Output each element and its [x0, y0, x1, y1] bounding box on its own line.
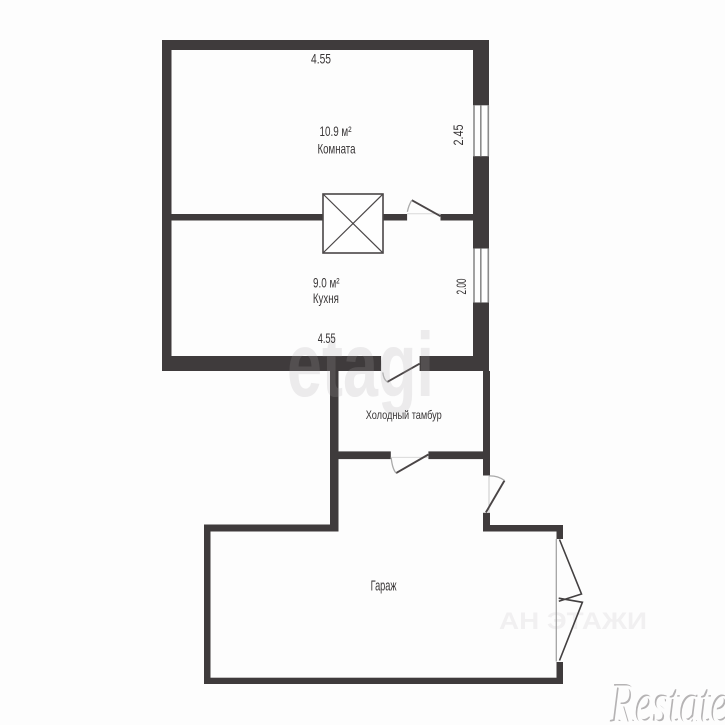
- svg-text:4.55: 4.55: [311, 51, 331, 67]
- svg-text:Restate: Restate: [611, 673, 725, 725]
- svg-text:4.55: 4.55: [318, 330, 336, 346]
- svg-text:2.45: 2.45: [450, 124, 466, 145]
- svg-text:Холодный тамбур: Холодный тамбур: [366, 408, 442, 422]
- svg-text:Комната: Комната: [318, 140, 356, 156]
- svg-text:2.00: 2.00: [453, 278, 469, 294]
- svg-text:Кухня: Кухня: [313, 290, 339, 306]
- svg-text:АН ЭТАЖИ: АН ЭТАЖИ: [499, 608, 647, 635]
- svg-text:etagi: etagi: [287, 315, 434, 416]
- svg-text:Гараж: Гараж: [371, 579, 397, 595]
- svg-text:9.0 м²: 9.0 м²: [313, 274, 340, 290]
- svg-text:10.9 м²: 10.9 м²: [320, 123, 352, 139]
